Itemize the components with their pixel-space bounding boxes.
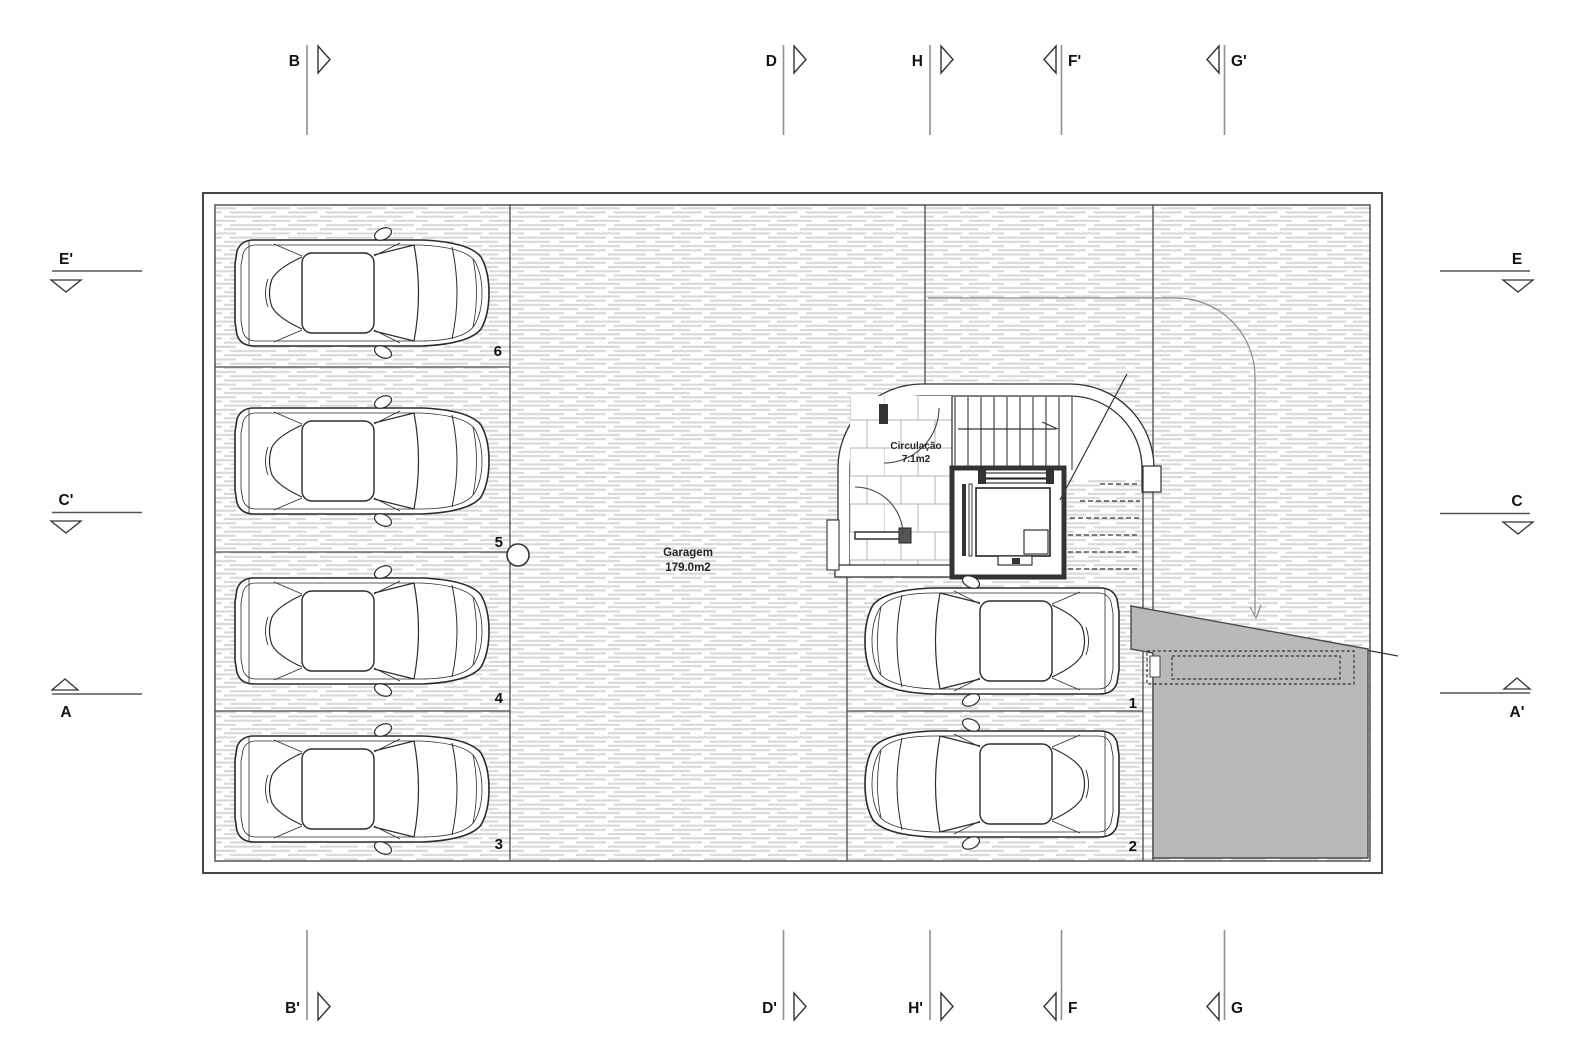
section-label: F' [1068, 53, 1081, 70]
ramp-slab [1131, 606, 1368, 858]
parking-number-5: 5 [495, 534, 503, 551]
parking-number-6: 6 [494, 343, 502, 360]
triangle-down-icon [51, 521, 81, 533]
section-marker-b: B [289, 45, 330, 135]
section-marker-a: A [52, 679, 142, 721]
section-marker-b-prime: B' [285, 930, 330, 1020]
car-space-5 [235, 393, 489, 529]
car-space-2 [865, 716, 1119, 852]
triangle-right-icon [794, 46, 806, 73]
garage-room-name: Garagem [663, 547, 713, 559]
section-label: E' [59, 251, 73, 268]
section-marker-e: E [1440, 251, 1533, 292]
section-label: B [289, 53, 300, 70]
section-label: A [60, 704, 71, 721]
section-label: H [912, 53, 923, 70]
section-label: D' [762, 1000, 777, 1017]
section-label: C [1511, 493, 1522, 510]
section-marker-c: C [1440, 493, 1533, 534]
elevator [952, 468, 1064, 577]
section-markers-top: B D H F' G' [289, 45, 1247, 135]
door-leaf [879, 404, 888, 424]
section-marker-f-prime: F' [1044, 45, 1081, 135]
car-space-6 [235, 225, 489, 361]
garage-room-area: 179.0m2 [665, 562, 710, 574]
section-marker-g-prime: G' [1207, 45, 1247, 135]
triangle-left-icon [1207, 993, 1219, 1020]
section-label: D [766, 53, 777, 70]
section-marker-a-prime: A' [1440, 678, 1530, 721]
section-label: B' [285, 1000, 300, 1017]
section-label: G' [1231, 53, 1247, 70]
triangle-down-icon [1503, 522, 1533, 534]
column [507, 544, 529, 566]
car-space-4 [235, 563, 489, 699]
section-label: F [1068, 1000, 1077, 1017]
triangle-up-icon [52, 679, 78, 690]
section-label: A' [1510, 704, 1525, 721]
triangle-down-icon [51, 280, 81, 292]
door-leaf [855, 532, 903, 539]
triangle-left-icon [1207, 46, 1219, 73]
section-marker-f: F [1044, 930, 1077, 1020]
triangle-right-icon [941, 993, 953, 1020]
ramp-area [1131, 606, 1368, 858]
triangle-right-icon [318, 46, 330, 73]
section-markers-right: E C A' [1440, 251, 1533, 721]
triangle-right-icon [318, 993, 330, 1020]
garage-plan: Garagem 179.0m2 Circulação 7.1m2 6 5 4 3… [203, 193, 1398, 873]
section-marker-h-prime: H' [908, 930, 953, 1020]
section-label: G [1231, 1000, 1243, 1017]
floor-plan-page: Garagem 179.0m2 Circulação 7.1m2 6 5 4 3… [0, 0, 1572, 1058]
triangle-left-icon [1044, 46, 1056, 73]
section-markers-left: E' C' A [51, 251, 142, 721]
section-marker-d: D [766, 45, 806, 135]
section-marker-h: H [912, 45, 953, 135]
floor-plan-canvas: Garagem 179.0m2 Circulação 7.1m2 6 5 4 3… [0, 0, 1572, 1058]
section-markers-bottom: B' D' H' F G [285, 930, 1243, 1020]
section-marker-c-prime: C' [51, 492, 142, 533]
triangle-right-icon [941, 46, 953, 73]
parking-number-4: 4 [495, 690, 504, 707]
section-label: C' [59, 492, 74, 509]
circulation-room-area: 7.1m2 [902, 454, 931, 465]
wall-pilaster [1143, 466, 1161, 492]
section-marker-e-prime: E' [51, 251, 142, 292]
lobby-bottom-wall [835, 565, 953, 577]
parking-number-3: 3 [495, 836, 503, 853]
triangle-down-icon [1503, 280, 1533, 292]
triangle-right-icon [794, 993, 806, 1020]
triangle-up-icon [1504, 678, 1530, 689]
wall-jog [827, 520, 839, 570]
circulation-room-name: Circulação [890, 441, 941, 452]
section-marker-d-prime: D' [762, 930, 806, 1020]
section-label: H' [908, 1000, 923, 1017]
parking-number-2: 2 [1129, 838, 1137, 855]
section-marker-g: G [1207, 930, 1243, 1020]
car-space-3 [235, 721, 489, 857]
car-space-1 [865, 573, 1119, 709]
ramp-notch [1150, 656, 1160, 677]
door-handle [899, 528, 911, 543]
triangle-left-icon [1044, 993, 1056, 1020]
section-label: E [1512, 251, 1522, 268]
parking-number-1: 1 [1129, 695, 1137, 712]
